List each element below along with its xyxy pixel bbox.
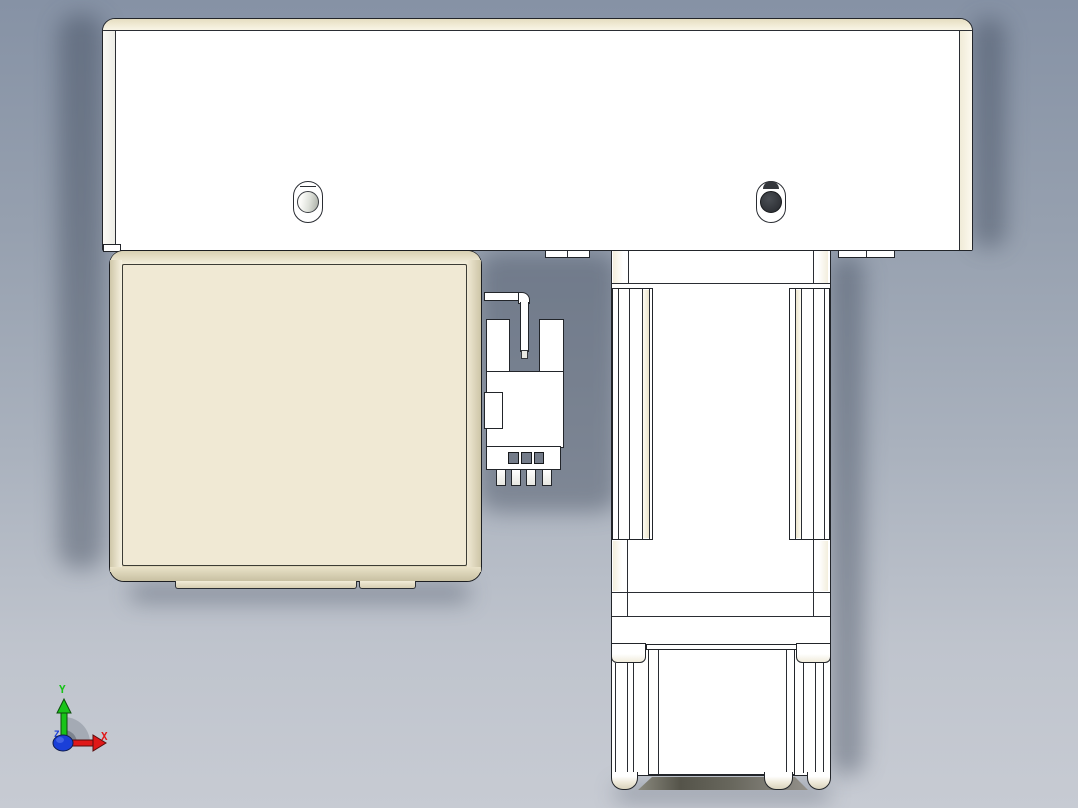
edge-line: [786, 650, 787, 774]
edge-line: [649, 289, 650, 539]
edge-line: [823, 663, 824, 773]
box-bottom-bevel: [110, 567, 481, 581]
box-right-bevel: [467, 260, 481, 572]
box-face[interactable]: [122, 264, 467, 566]
collar-highlight-right: [818, 250, 828, 283]
z-sphere-highlight: [56, 737, 64, 743]
rail-left: [612, 288, 653, 540]
header-hole: [521, 452, 532, 464]
edge-line: [629, 289, 630, 539]
edge-line: [642, 289, 643, 539]
y-axis-label: Y: [59, 683, 66, 696]
cast-shadow-right-motor: [830, 255, 864, 775]
box-left-bevel: [110, 260, 122, 572]
top-rail-body[interactable]: [102, 18, 973, 251]
screw-head-light: [297, 191, 319, 213]
collar-line-right: [813, 250, 814, 283]
gearbox-face[interactable]: [648, 649, 795, 775]
bent-tab-horizontal: [484, 292, 522, 301]
rail-right-bevel: [959, 31, 972, 250]
edge-line: [633, 663, 634, 773]
connector-side-lug: [484, 392, 503, 429]
clamp-tab-right: [796, 643, 831, 663]
connector-base-block: [486, 446, 561, 470]
z-axis-sphere: [53, 735, 73, 751]
shoulder-edge: [612, 592, 830, 593]
header-hole: [508, 452, 519, 464]
shoulder-highlight-right: [819, 541, 828, 591]
connector-pin: [542, 469, 552, 486]
box-top-bevel: [110, 251, 481, 264]
slot-chord: [300, 186, 316, 187]
cad-viewport[interactable]: Z Y X: [0, 0, 1078, 808]
header-hole: [534, 452, 544, 464]
flange-edge: [612, 616, 830, 617]
connector-pin: [526, 469, 536, 486]
connector-prong-left: [486, 319, 510, 373]
rail-outline: [102, 18, 973, 251]
edge-line: [658, 650, 659, 774]
edge-line: [618, 289, 619, 539]
box-foot-tab-long: [175, 581, 357, 589]
rail-right: [789, 288, 830, 540]
edge-line: [866, 251, 867, 257]
edge-line: [615, 663, 616, 773]
y-axis-arrowhead: [57, 699, 71, 713]
edge-line: [815, 663, 816, 773]
connector-pin: [496, 469, 506, 486]
slot-hole-right[interactable]: [756, 181, 786, 223]
clamp-tab-left: [611, 643, 646, 663]
screw-head-dark: [760, 191, 782, 213]
motor-body[interactable]: [611, 249, 831, 776]
edge-line: [567, 251, 568, 257]
shoulder-highlight-left: [613, 541, 622, 591]
collar-bottom-edge: [612, 283, 830, 284]
edge-line: [627, 663, 628, 773]
collar-line-left: [628, 250, 629, 283]
collar-highlight-left: [613, 250, 623, 283]
rail-left-bevel: [103, 31, 116, 250]
side-box[interactable]: [109, 250, 482, 582]
edge-line: [801, 289, 802, 539]
edge-line: [824, 289, 825, 539]
slot-dark-cap: [763, 181, 779, 189]
box-foot-tab-short: [359, 581, 416, 589]
cast-shadow-right-rail: [972, 18, 1006, 248]
cast-shadow-left: [58, 14, 104, 569]
edge-line: [813, 540, 814, 616]
bent-tab-tip: [521, 350, 528, 359]
slot-hole-left[interactable]: [293, 181, 323, 223]
edge-line: [803, 663, 804, 773]
edge-line: [813, 289, 814, 539]
connector-prong-right: [539, 319, 564, 373]
axis-triad[interactable]: Z Y X: [46, 680, 114, 756]
rail-top-bevel: [103, 19, 972, 31]
edge-line: [627, 540, 628, 616]
rail-ledge-right: [838, 250, 895, 258]
rail-ledge-mid: [545, 250, 590, 258]
x-axis-label: X: [101, 730, 108, 743]
bent-tab-vertical: [520, 302, 529, 352]
connector-pin: [511, 469, 521, 486]
